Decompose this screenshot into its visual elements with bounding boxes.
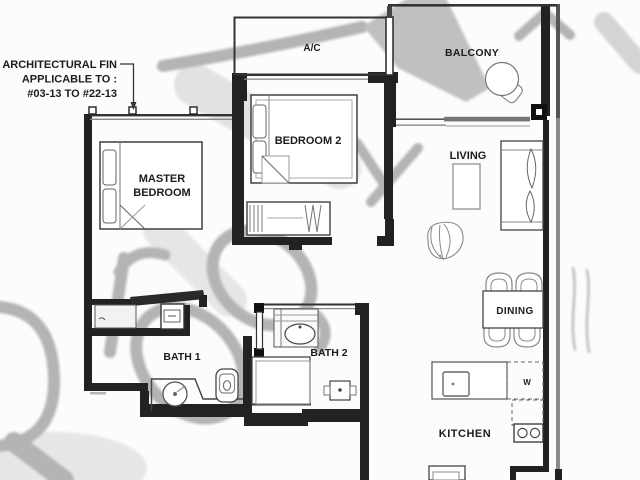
svg-text:APPLICABLE TO :: APPLICABLE TO : [22, 74, 117, 86]
svg-text:KITCHEN: KITCHEN [439, 428, 491, 440]
svg-text:A/C: A/C [303, 43, 320, 54]
svg-text:BEDROOM 2: BEDROOM 2 [275, 135, 342, 147]
svg-text:BATH 2: BATH 2 [310, 347, 347, 359]
svg-text:DINING: DINING [496, 306, 533, 317]
svg-text:BATH 1: BATH 1 [163, 351, 200, 363]
svg-text:BEDROOM: BEDROOM [133, 187, 190, 199]
svg-text:MASTER: MASTER [139, 173, 186, 185]
svg-text:BALCONY: BALCONY [445, 47, 499, 59]
svg-text:LIVING: LIVING [450, 150, 487, 162]
svg-text:ARCHITECTURAL FIN: ARCHITECTURAL FIN [2, 59, 117, 71]
svg-text:#03-13 TO #22-13: #03-13 TO #22-13 [27, 88, 117, 100]
svg-text:W: W [523, 378, 531, 387]
